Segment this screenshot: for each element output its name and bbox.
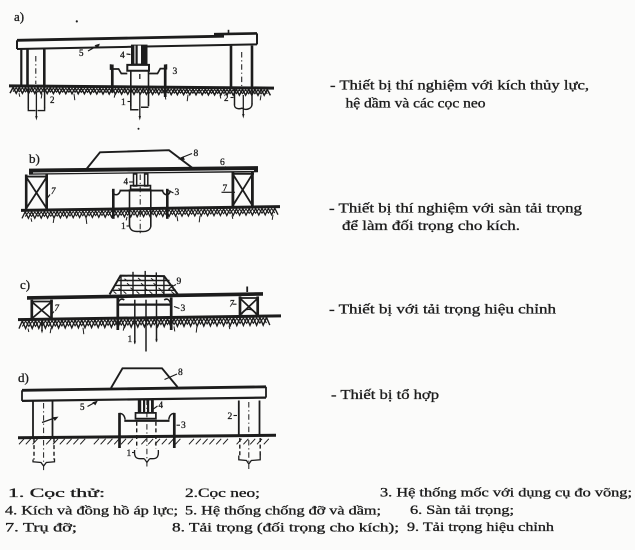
svg-text:3: 3 — [181, 421, 186, 431]
svg-text:8. Tải trọng (đối trọng cho kí: 8. Tải trọng (đối trọng cho kích); — [172, 521, 399, 535]
svg-text:2.Cọc neo;: 2.Cọc neo; — [185, 486, 260, 500]
svg-text:5. Hệ thống chống đỡ và dầm;: 5. Hệ thống chống đỡ và dầm; — [185, 504, 381, 518]
svg-text:4. Kích và đồng hồ áp lực;: 4. Kích và đồng hồ áp lực; — [5, 504, 178, 518]
svg-text:5: 5 — [79, 48, 84, 58]
svg-text:7: 7 — [230, 299, 235, 309]
svg-text:9. Tải trọng hiệu chỉnh: 9. Tải trọng hiệu chỉnh — [407, 520, 555, 534]
svg-text:1. Cọc thử:: 1. Cọc thử: — [8, 486, 105, 500]
svg-text:2: 2 — [228, 412, 233, 422]
svg-text:3: 3 — [173, 67, 178, 77]
svg-text:7: 7 — [55, 303, 60, 313]
svg-text:5: 5 — [80, 402, 85, 412]
svg-text:- Thiết bị với tải trọng hiệu: - Thiết bị với tải trọng hiệu chỉnh — [329, 302, 556, 317]
svg-text:6. Sàn tải trọng;: 6. Sàn tải trọng; — [410, 503, 514, 517]
svg-text:7: 7 — [51, 186, 56, 196]
svg-text:d): d) — [18, 370, 29, 385]
svg-text:- Thiết bị thí nghiệm với sàn: - Thiết bị thí nghiệm với sàn tải trọng — [329, 201, 582, 216]
svg-text:1: 1 — [121, 222, 126, 232]
svg-text:để làm đối trọng cho kích.: để làm đối trọng cho kích. — [342, 218, 520, 233]
svg-text:- Thiết bị tổ hợp: - Thiết bị tổ hợp — [331, 387, 439, 402]
svg-text:8: 8 — [178, 368, 183, 378]
svg-text:3: 3 — [175, 188, 180, 198]
svg-text:3: 3 — [181, 304, 186, 314]
svg-text:1: 1 — [127, 449, 132, 459]
svg-text:4: 4 — [120, 51, 125, 61]
svg-text:a): a) — [14, 9, 24, 24]
svg-text:3. Hệ thống mốc với dụng cụ đo: 3. Hệ thống mốc với dụng cụ đo võng; — [380, 486, 632, 500]
svg-text:1: 1 — [121, 98, 126, 108]
svg-text:- Thiết bị thí nghiệm với kích: - Thiết bị thí nghiệm với kích thủy lực, — [330, 78, 589, 93]
svg-text:8: 8 — [194, 149, 199, 159]
svg-text:7. Trụ đỡ;: 7. Trụ đỡ; — [5, 521, 77, 535]
svg-text:4: 4 — [124, 177, 129, 187]
svg-text:c): c) — [20, 277, 30, 292]
svg-text:hệ dầm và các cọc neo: hệ dầm và các cọc neo — [346, 95, 486, 110]
svg-text:1: 1 — [128, 335, 133, 345]
svg-text:9: 9 — [177, 277, 182, 287]
svg-text:2: 2 — [50, 95, 55, 105]
svg-text:b): b) — [29, 151, 40, 166]
svg-text:6: 6 — [220, 158, 225, 168]
svg-text:4: 4 — [159, 400, 164, 410]
